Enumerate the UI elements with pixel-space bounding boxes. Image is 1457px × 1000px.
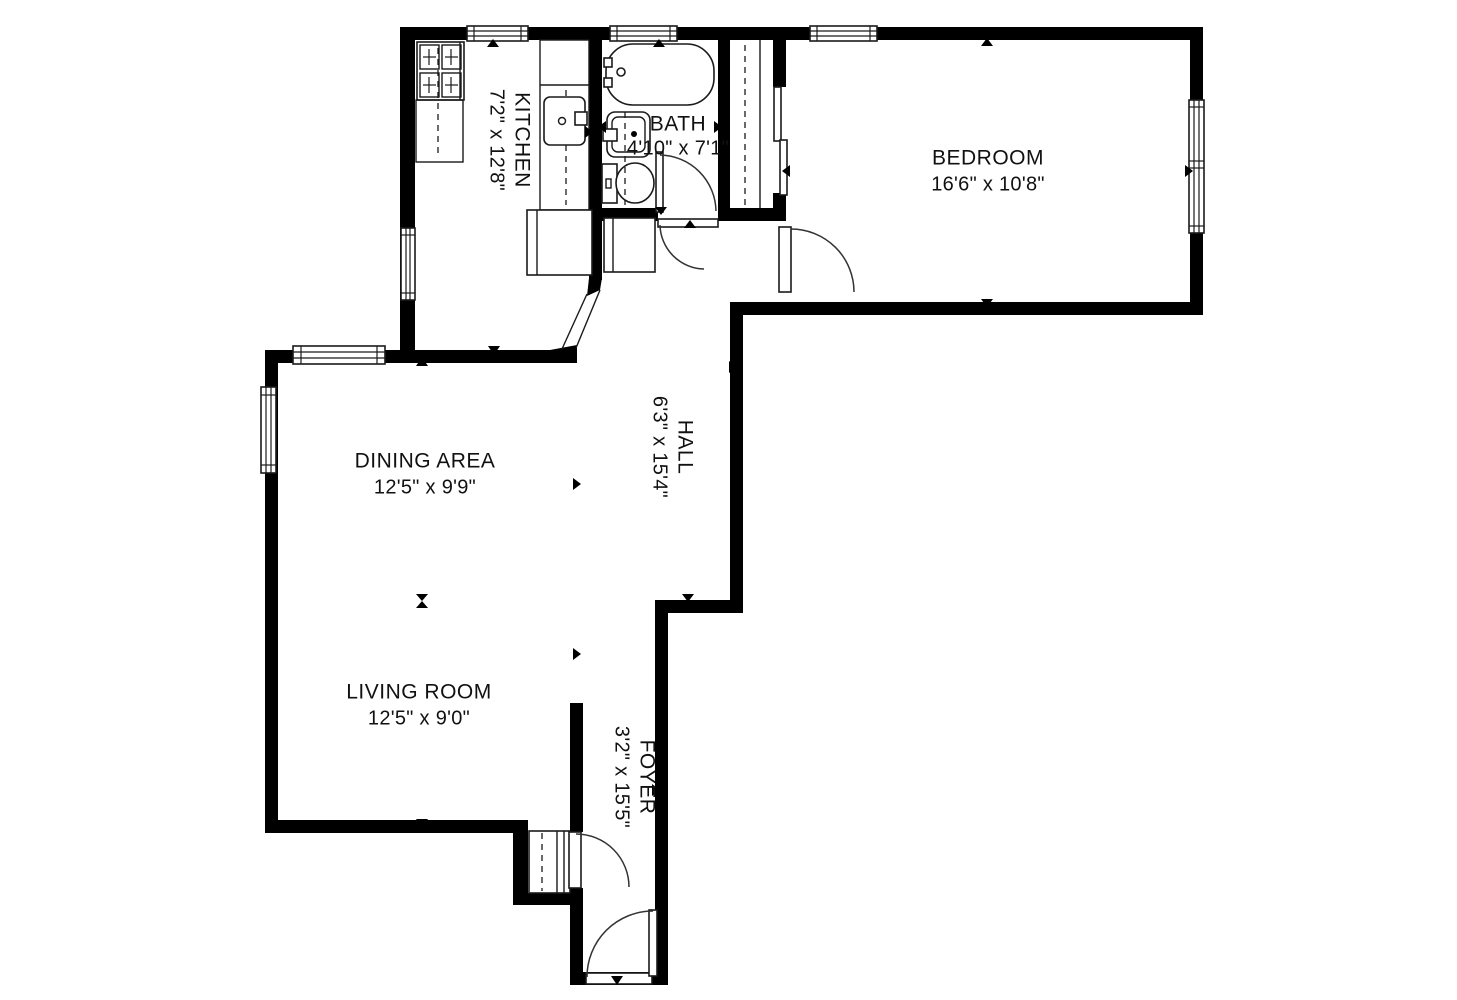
bedroom-name: BEDROOM xyxy=(932,147,1044,170)
room-label-living: LIVING ROOM 12'5" x 9'0" xyxy=(346,681,492,730)
kitchen-sink-icon xyxy=(544,97,587,145)
bedroom-dimensions: 16'6" x 10'8" xyxy=(931,173,1045,195)
sliding-door-panel xyxy=(774,87,781,141)
room-label-dining: DINING AREA 12'5" x 9'9" xyxy=(355,450,496,499)
wall-foyer-left-upper xyxy=(570,703,583,832)
wall-hall-right xyxy=(730,315,743,613)
dining-left-window xyxy=(261,387,276,473)
bedroom-right-window xyxy=(1189,100,1204,233)
room-label-kitchen: KITCHEN 7'2" x 12'8" xyxy=(486,89,534,191)
dining-name: DINING AREA xyxy=(355,450,496,473)
kitchen-left-window xyxy=(401,228,415,300)
kitchen-counter-right xyxy=(540,40,589,210)
kitchen-name: KITCHEN xyxy=(510,92,533,188)
angled-opening xyxy=(562,290,600,349)
bath-door xyxy=(656,152,716,212)
living-dimensions: 12'5" x 9'0" xyxy=(368,707,470,729)
room-label-bedroom: BEDROOM 16'6" x 10'8" xyxy=(931,147,1045,196)
dining-top-window xyxy=(293,346,385,364)
wall-stub-bottom xyxy=(550,345,577,363)
bedroom-door xyxy=(779,227,854,292)
wall-foyer-left-lower xyxy=(570,888,583,985)
entry-door xyxy=(586,910,657,984)
foyer-dimensions: 3'2" x 15'5" xyxy=(611,726,633,828)
walls xyxy=(265,27,1203,985)
hall-name: HALL xyxy=(673,420,696,475)
foyer-closet-door xyxy=(569,832,629,888)
wall-bedroom-left-mid xyxy=(773,193,786,220)
wall-living-bottom xyxy=(265,820,528,833)
hall-closet xyxy=(604,218,655,272)
room-label-hall: HALL 6'3" x 15'4" xyxy=(649,396,697,498)
sliding-door-panel xyxy=(780,140,787,195)
room-label-foyer: FOYER 3'2" x 15'5" xyxy=(611,726,659,828)
floor-plan-drawing: KITCHEN 7'2" x 12'8" BATH 4'10" x 7'1" B… xyxy=(0,0,1457,1000)
hall-dimensions: 6'3" x 15'4" xyxy=(649,396,671,498)
doors xyxy=(569,152,854,984)
wall-stub-top xyxy=(587,278,602,296)
wall-kitchen-left xyxy=(400,27,415,350)
bathtub-icon xyxy=(604,44,714,105)
kitchen-dimensions: 7'2" x 12'8" xyxy=(486,89,508,191)
bedroom-top-window xyxy=(810,26,877,41)
bath-name: BATH xyxy=(650,113,706,136)
bath-dimensions: 4'10" x 7'1" xyxy=(627,137,729,159)
wall-hall-step xyxy=(655,600,743,613)
foyer-name: FOYER xyxy=(635,740,658,815)
bath-top-window xyxy=(610,26,677,41)
living-name: LIVING ROOM xyxy=(346,681,492,704)
stove-icon xyxy=(417,42,464,100)
room-labels: KITCHEN 7'2" x 12'8" BATH 4'10" x 7'1" B… xyxy=(346,89,1045,828)
wall-bedroom-left-top xyxy=(773,40,786,87)
dining-dimensions: 12'5" x 9'9" xyxy=(374,476,476,498)
kitchen-top-window xyxy=(467,26,528,41)
kitchen-lower-cabinet xyxy=(527,210,592,275)
floor-plan: KITCHEN 7'2" x 12'8" BATH 4'10" x 7'1" B… xyxy=(0,0,1457,1000)
foyer-closet xyxy=(529,831,570,893)
wall-bath-right xyxy=(718,40,730,221)
wall-bedroom-bottom xyxy=(730,302,1203,315)
